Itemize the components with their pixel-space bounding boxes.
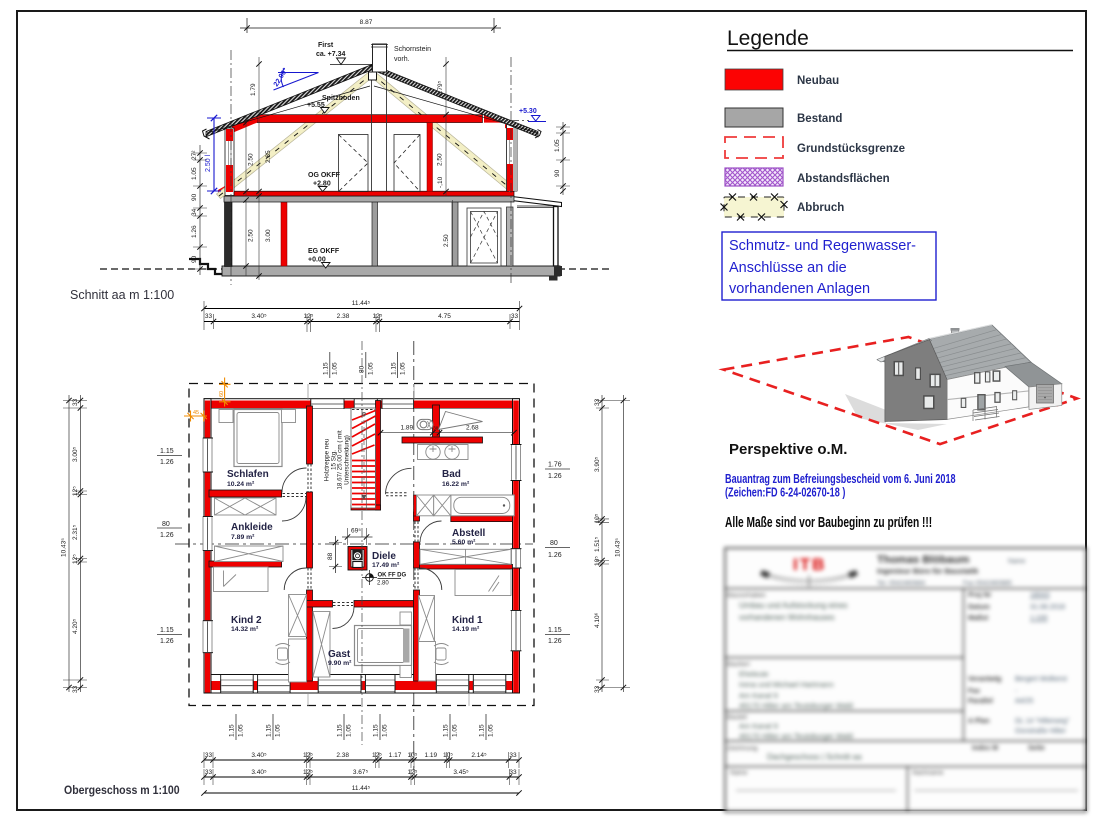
svg-text:16.22 m²: 16.22 m² xyxy=(442,481,470,488)
svg-text:Zeichnung: Zeichnung xyxy=(727,745,758,752)
svg-text:80: 80 xyxy=(550,540,558,547)
svg-text:Alle Maße sind vor Baubeginn z: Alle Maße sind vor Baubeginn zu prüfen !… xyxy=(725,513,932,531)
svg-text:12⁵: 12⁵ xyxy=(373,313,383,320)
svg-text:12⁵: 12⁵ xyxy=(303,752,313,759)
svg-text:10.43⁵: 10.43⁵ xyxy=(61,538,68,557)
svg-text:1.05: 1.05 xyxy=(191,167,198,180)
svg-text:1.89: 1.89 xyxy=(401,424,414,431)
svg-text:A Plan: A Plan xyxy=(968,718,990,725)
svg-text:Name: Name xyxy=(730,770,748,777)
svg-text:3.00⁵: 3.00⁵ xyxy=(72,446,79,462)
svg-text:Osnstraße Hilter: Osnstraße Hilter xyxy=(1015,728,1067,735)
svg-text:1.15: 1.15 xyxy=(548,627,562,634)
svg-text:1.05: 1.05 xyxy=(368,362,375,375)
svg-text:2.38: 2.38 xyxy=(337,313,350,320)
svg-text:Schmutz- und Regenwasser-: Schmutz- und Regenwasser- xyxy=(729,238,916,254)
svg-text:1.15: 1.15 xyxy=(229,724,236,737)
svg-text:Schlafen: Schlafen xyxy=(227,469,269,480)
svg-text:1.15: 1.15 xyxy=(373,724,380,737)
svg-text:1.15: 1.15 xyxy=(160,448,174,455)
svg-text:4.75: 4.75 xyxy=(438,313,451,320)
svg-text:1.05: 1.05 xyxy=(275,724,282,737)
svg-text:2.50 l: 2.50 l xyxy=(205,154,212,172)
svg-text:1.26: 1.26 xyxy=(160,532,174,539)
svg-text:2.50: 2.50 xyxy=(443,234,450,247)
svg-text:1.15: 1.15 xyxy=(266,724,273,737)
svg-text:Gast: Gast xyxy=(328,649,351,660)
svg-text:Schnitt aa m 1:100: Schnitt aa m 1:100 xyxy=(70,288,174,302)
svg-text:2.38: 2.38 xyxy=(336,752,349,759)
svg-text:Kind 2: Kind 2 xyxy=(231,615,262,626)
svg-text:33: 33 xyxy=(72,685,79,693)
svg-text:OK FF DG: OK FF DG xyxy=(378,573,407,579)
svg-text:69⁵: 69⁵ xyxy=(351,528,361,535)
svg-text:1.05: 1.05 xyxy=(238,724,245,737)
svg-text:Fax: Fax xyxy=(968,688,980,695)
svg-text:Bestand: Bestand xyxy=(797,113,842,125)
svg-text:1.17: 1.17 xyxy=(389,752,402,759)
svg-text:Diele: Diele xyxy=(372,551,396,562)
svg-text:1.79: 1.79 xyxy=(250,83,257,96)
svg-text:DL 14 "Hilterweg": DL 14 "Hilterweg" xyxy=(1015,718,1070,725)
svg-text:34: 34 xyxy=(191,208,198,216)
svg-text:1.15: 1.15 xyxy=(479,724,486,737)
svg-text:(Zeichen:FD 6-24-02670-18 ): (Zeichen:FD 6-24-02670-18 ) xyxy=(725,486,846,500)
svg-text:2.50: 2.50 xyxy=(248,153,255,166)
svg-text:Index M: Index M xyxy=(972,745,998,752)
svg-text:1.05: 1.05 xyxy=(346,724,353,737)
svg-text:33: 33 xyxy=(509,769,517,776)
svg-text:1.51⁵: 1.51⁵ xyxy=(594,536,601,552)
svg-text:Seite: Seite xyxy=(1028,745,1045,752)
svg-text:1.15: 1.15 xyxy=(390,362,397,375)
svg-text:4.20⁵: 4.20⁵ xyxy=(72,618,79,634)
svg-text:1.19: 1.19 xyxy=(424,752,437,759)
svg-text:1.26: 1.26 xyxy=(548,552,562,559)
svg-text:Neubau: Neubau xyxy=(797,75,839,87)
svg-text:Verantwtg: Verantwtg xyxy=(968,676,1001,683)
svg-text:80: 80 xyxy=(162,521,170,528)
svg-text:1.15: 1.15 xyxy=(160,627,174,634)
svg-text:Legende: Legende xyxy=(727,27,809,50)
svg-text:9.90 m²: 9.90 m² xyxy=(328,660,352,667)
svg-text:Tel. 0542460884: Tel. 0542460884 xyxy=(877,580,925,587)
svg-text:Bauvorhaben: Bauvorhaben xyxy=(727,592,766,599)
svg-text:Bauteil: Bauteil xyxy=(727,714,747,721)
svg-text:1.05: 1.05 xyxy=(332,362,339,375)
svg-text:33: 33 xyxy=(205,313,213,320)
svg-text:3.67⁵: 3.67⁵ xyxy=(353,769,369,776)
svg-text:1.26: 1.26 xyxy=(548,638,562,645)
svg-text:Fax 0542460885: Fax 0542460885 xyxy=(963,580,1012,587)
svg-text:11.44⁵: 11.44⁵ xyxy=(352,785,371,792)
svg-text:1.15: 1.15 xyxy=(337,724,344,737)
svg-text:14.32 m²: 14.32 m² xyxy=(231,626,259,633)
svg-text:vorh.: vorh. xyxy=(394,56,410,63)
svg-text:1:100: 1:100 xyxy=(1030,615,1048,622)
svg-text:17.49 m²: 17.49 m² xyxy=(372,562,400,569)
svg-text:5.60 m²: 5.60 m² xyxy=(452,539,476,546)
svg-text:Parallel: Parallel xyxy=(968,698,993,705)
svg-text:1.05: 1.05 xyxy=(399,362,406,375)
svg-text:vorhandenen Anlagen: vorhandenen Anlagen xyxy=(729,281,870,297)
svg-text:Umbau und Aufstockung eines: Umbau und Aufstockung eines xyxy=(739,601,848,610)
svg-text:11.44⁵: 11.44⁵ xyxy=(352,300,371,307)
svg-text:14.19 m²: 14.19 m² xyxy=(452,626,480,633)
svg-text:OG OKFF: OG OKFF xyxy=(308,172,341,179)
svg-text:EG OKFF: EG OKFF xyxy=(308,248,340,255)
svg-text:Ankleide: Ankleide xyxy=(231,522,273,533)
svg-text:Obergeschoss m 1:100: Obergeschoss m 1:100 xyxy=(64,784,180,797)
svg-text:1.26: 1.26 xyxy=(160,459,174,466)
svg-text:18043: 18043 xyxy=(1030,592,1050,599)
svg-text:+5.30: +5.30 xyxy=(519,108,537,115)
svg-text:Datum: Datum xyxy=(968,604,990,611)
svg-text:33: 33 xyxy=(205,752,213,759)
svg-text:8.87: 8.87 xyxy=(360,19,373,26)
svg-text:12⁵: 12⁵ xyxy=(72,554,79,564)
svg-text:A4/25: A4/25 xyxy=(1015,698,1033,705)
svg-text:Nachname: Nachname xyxy=(912,770,944,777)
svg-text:Proj Nr: Proj Nr xyxy=(968,592,992,599)
svg-text:3.00: 3.00 xyxy=(265,229,272,242)
svg-text:First: First xyxy=(318,42,334,49)
svg-text:18.67/ 25.00 cm ( mit: 18.67/ 25.00 cm ( mit xyxy=(337,430,344,489)
svg-text:1.05: 1.05 xyxy=(554,139,561,152)
svg-text:49170 Hilter am Teutoburger Wa: 49170 Hilter am Teutoburger Wald xyxy=(739,701,853,710)
svg-text:2.50: 2.50 xyxy=(437,153,444,166)
svg-text:Am Kanal 9: Am Kanal 9 xyxy=(739,691,778,700)
svg-text:ITB: ITB xyxy=(793,555,826,574)
svg-text:4.10⁶: 4.10⁶ xyxy=(594,612,601,628)
svg-text:10⁵: 10⁵ xyxy=(443,752,453,759)
svg-text:Spitzboden: Spitzboden xyxy=(322,95,360,102)
svg-text:90: 90 xyxy=(554,169,561,177)
svg-text:1.05: 1.05 xyxy=(452,724,459,737)
svg-text:2.85: 2.85 xyxy=(265,150,272,163)
svg-text:3.40⁵: 3.40⁵ xyxy=(251,313,267,320)
svg-text:12⁵: 12⁵ xyxy=(303,769,313,776)
svg-text:7.89 m²: 7.89 m² xyxy=(231,534,255,541)
svg-text:Ingenieur Büro für Baustatik: Ingenieur Büro für Baustatik xyxy=(877,567,979,576)
svg-text:Perspektive o.M.: Perspektive o.M. xyxy=(729,441,847,458)
svg-text:Schornstein: Schornstein xyxy=(394,46,431,53)
svg-text:Maßst: Maßst xyxy=(968,615,989,622)
svg-text:Bergert Wolkerst: Bergert Wolkerst xyxy=(1015,676,1067,683)
svg-text:33: 33 xyxy=(205,769,213,776)
svg-text:Abstandsflächen: Abstandsflächen xyxy=(797,173,890,185)
svg-text:45: 45 xyxy=(193,410,199,416)
svg-text:Thomas Blöbaum: Thomas Blöbaum xyxy=(877,554,970,566)
svg-text:Holztreppe neu: Holztreppe neu xyxy=(324,438,331,481)
svg-text:Name: Name xyxy=(1008,558,1026,565)
svg-text:Am Kanal 9: Am Kanal 9 xyxy=(739,722,778,731)
svg-text:3.40⁵: 3.40⁵ xyxy=(251,752,267,759)
svg-text:ca. +7.34: ca. +7.34 xyxy=(316,51,345,58)
svg-text:2.68: 2.68 xyxy=(466,424,479,431)
svg-text:10.24 m²: 10.24 m² xyxy=(227,481,255,488)
svg-text:1.26: 1.26 xyxy=(548,473,562,480)
svg-text:Irena und Michael Hartmann: Irena und Michael Hartmann xyxy=(739,680,834,689)
svg-text:90: 90 xyxy=(191,255,198,263)
svg-text:1.26: 1.26 xyxy=(191,225,198,238)
svg-text:1.15: 1.15 xyxy=(443,724,450,737)
svg-text:33: 33 xyxy=(594,685,601,693)
svg-text:10⁵: 10⁵ xyxy=(594,556,601,566)
svg-text:1.05: 1.05 xyxy=(488,724,495,737)
svg-text:1.15: 1.15 xyxy=(323,362,330,375)
svg-text:33: 33 xyxy=(509,752,517,759)
svg-text:27²: 27² xyxy=(191,150,198,160)
svg-text:Eheleute: Eheleute xyxy=(739,670,769,679)
svg-text:38: 38 xyxy=(433,426,439,431)
svg-text:Abstell: Abstell xyxy=(452,528,486,539)
svg-text:12⁵: 12⁵ xyxy=(72,486,79,496)
svg-text:10⁵: 10⁵ xyxy=(594,513,601,523)
svg-text:Grundstücksgrenze: Grundstücksgrenze xyxy=(797,143,905,155)
svg-text:49170 Hilter am Teutoburger Wa: 49170 Hilter am Teutoburger Wald xyxy=(739,732,853,741)
svg-text:31.08.2018: 31.08.2018 xyxy=(1030,604,1065,611)
svg-text:10.43⁵: 10.43⁵ xyxy=(615,538,622,557)
svg-text:2.80: 2.80 xyxy=(377,581,389,587)
svg-text:12⁵: 12⁵ xyxy=(304,313,314,320)
svg-text:33: 33 xyxy=(72,398,79,406)
svg-text:3.90⁵: 3.90⁵ xyxy=(594,456,601,472)
svg-text:1.05: 1.05 xyxy=(382,724,389,737)
svg-text:88: 88 xyxy=(327,552,334,560)
svg-text:10⁵: 10⁵ xyxy=(408,752,418,759)
svg-text:15 Stg.: 15 Stg. xyxy=(331,450,338,470)
svg-text:vorhandenen Wohnhauses: vorhandenen Wohnhauses xyxy=(739,613,834,622)
svg-text:33: 33 xyxy=(594,398,601,406)
svg-text:Abbruch: Abbruch xyxy=(797,202,844,214)
svg-text:90: 90 xyxy=(191,193,198,201)
svg-text:3.45⁵: 3.45⁵ xyxy=(453,769,469,776)
svg-text:Kind 1: Kind 1 xyxy=(452,615,483,626)
svg-text:2.14⁵: 2.14⁵ xyxy=(471,752,487,759)
svg-text:Anschlüsse an die: Anschlüsse an die xyxy=(729,260,847,276)
svg-text:-,10: -,10 xyxy=(437,176,444,188)
svg-text:1.26: 1.26 xyxy=(160,638,174,645)
svg-text:Bauherr: Bauherr xyxy=(727,661,751,668)
svg-text:Dachgeschoss | Schnitt aa: Dachgeschoss | Schnitt aa xyxy=(767,753,862,762)
svg-text:3.40⁵: 3.40⁵ xyxy=(251,769,267,776)
svg-text:Bad: Bad xyxy=(442,469,461,480)
svg-text:12⁵: 12⁵ xyxy=(372,752,382,759)
svg-text:Unterschneidung): Unterschneidung) xyxy=(344,435,351,485)
svg-text:1.76: 1.76 xyxy=(548,462,562,469)
svg-text:Bauantrag zum Befreiungsbesche: Bauantrag zum Befreiungsbescheid vom 6. … xyxy=(725,473,956,487)
svg-text:2.31⁵: 2.31⁵ xyxy=(72,524,79,540)
svg-text:33: 33 xyxy=(511,313,519,320)
svg-text:1.79⁵: 1.79⁵ xyxy=(437,80,444,96)
svg-text:12⁵: 12⁵ xyxy=(408,769,418,776)
svg-text:60: 60 xyxy=(219,391,225,397)
svg-text:2.50: 2.50 xyxy=(248,229,255,242)
